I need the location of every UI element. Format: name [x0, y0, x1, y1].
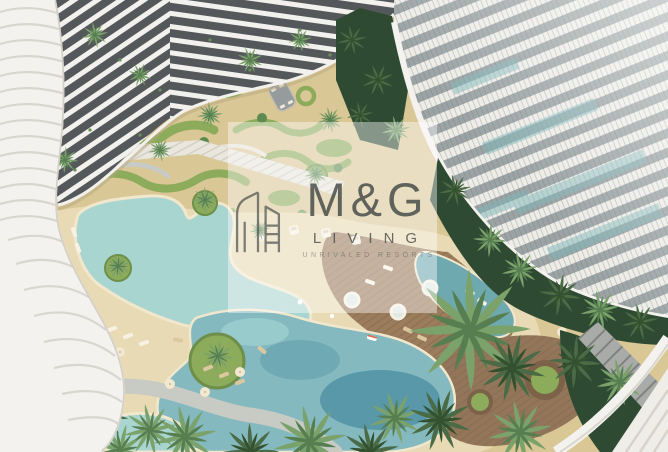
listing-photo: M&G LIVING UNRIVALED RESORTS — [0, 0, 668, 452]
watermark-brand: M&G — [306, 176, 428, 223]
swim-ring — [330, 314, 334, 318]
watermark-panel: M&G LIVING UNRIVALED RESORTS — [228, 122, 437, 313]
watermark-tagline: UNRIVALED RESORTS — [302, 252, 435, 259]
watermark-subtitle: LIVING — [313, 230, 428, 247]
buildings-outline-icon — [229, 180, 287, 256]
